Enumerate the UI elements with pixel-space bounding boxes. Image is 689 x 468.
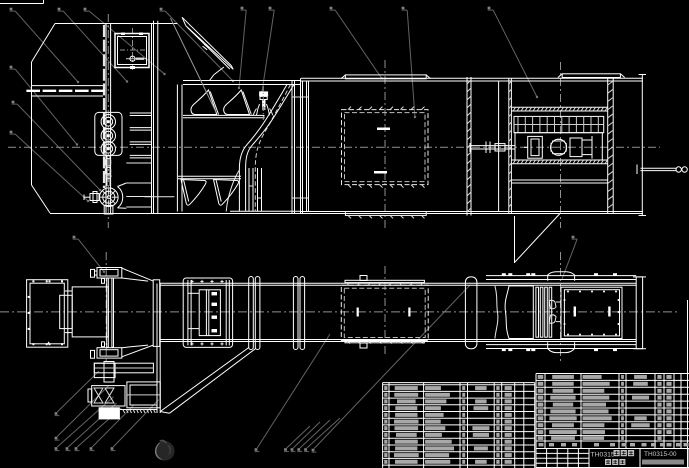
svg-text:TH0315-00: TH0315-00 <box>644 451 677 458</box>
svg-text:TH0315: TH0315 <box>591 452 615 459</box>
